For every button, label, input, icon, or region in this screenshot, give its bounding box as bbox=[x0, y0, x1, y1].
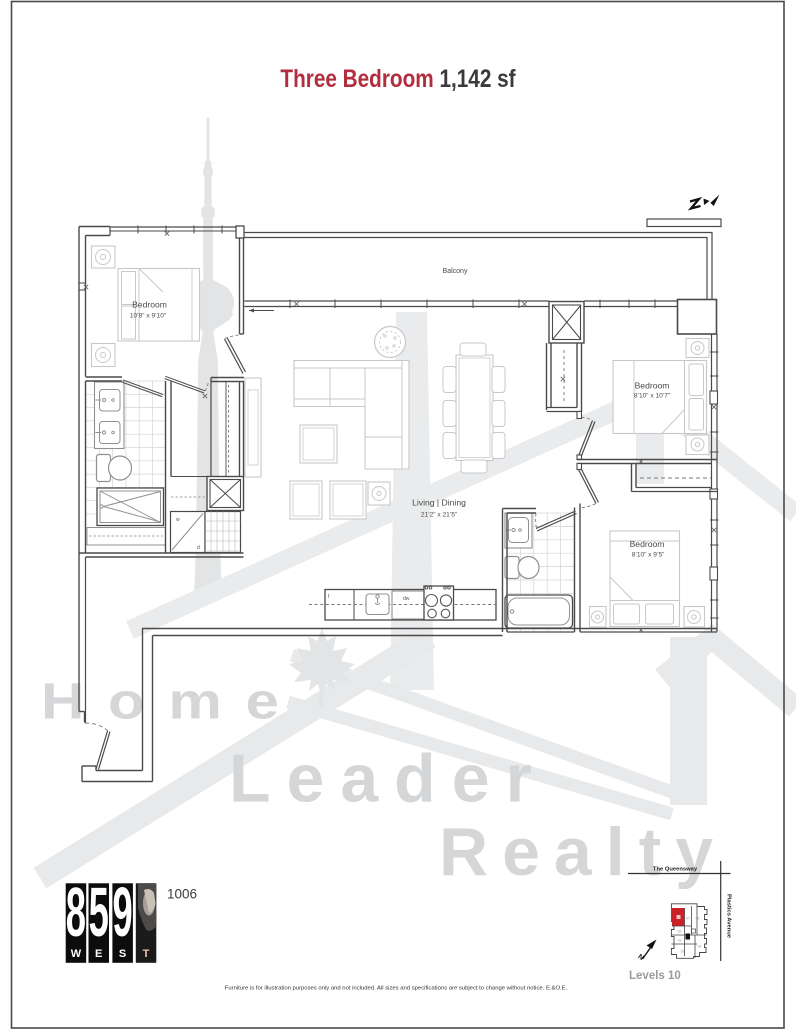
svg-text:07: 07 bbox=[686, 917, 690, 921]
svg-text:1006: 1006 bbox=[167, 887, 197, 902]
svg-text:w: w bbox=[176, 517, 180, 523]
svg-text:The Queensway: The Queensway bbox=[653, 867, 698, 873]
svg-text:T: T bbox=[143, 948, 150, 960]
svg-text:8’10” x 9’5”: 8’10” x 9’5” bbox=[632, 552, 665, 559]
svg-text:Bedroom: Bedroom bbox=[132, 300, 167, 310]
svg-text:08: 08 bbox=[696, 917, 700, 921]
svg-text:Living | Dining: Living | Dining bbox=[412, 498, 466, 508]
svg-text:S: S bbox=[119, 948, 126, 960]
svg-text:Balcony: Balcony bbox=[443, 268, 468, 275]
svg-text:8: 8 bbox=[66, 873, 86, 951]
svg-text:E: E bbox=[95, 948, 102, 960]
svg-text:Realty: Realty bbox=[439, 814, 727, 890]
svg-text:05: 05 bbox=[678, 930, 682, 934]
svg-text:Levels 10: Levels 10 bbox=[629, 970, 681, 982]
svg-text:Bedroom: Bedroom bbox=[635, 381, 670, 391]
svg-text:03: 03 bbox=[678, 939, 682, 943]
svg-text:21’2” x 21’5”: 21’2” x 21’5” bbox=[421, 512, 457, 519]
svg-text:Home: Home bbox=[41, 673, 303, 730]
svg-text:04: 04 bbox=[698, 945, 702, 949]
svg-text:Bedroom: Bedroom bbox=[630, 539, 665, 549]
svg-text:dw: dw bbox=[403, 596, 410, 602]
svg-text:10’8” x 9’10”: 10’8” x 9’10” bbox=[130, 313, 166, 320]
svg-text:02: 02 bbox=[681, 950, 685, 954]
svg-text:W: W bbox=[71, 948, 82, 960]
svg-text:Leader: Leader bbox=[229, 741, 548, 817]
svg-text:9: 9 bbox=[112, 873, 132, 951]
svg-text:Plastics Avenue: Plastics Avenue bbox=[726, 894, 732, 939]
svg-text:8’10” x 10’7”: 8’10” x 10’7” bbox=[634, 393, 670, 400]
svg-text:5: 5 bbox=[89, 873, 109, 951]
svg-text:d: d bbox=[197, 545, 200, 551]
svg-text:Furniture is for illustration: Furniture is for illustration purposes o… bbox=[225, 986, 568, 992]
svg-text:Three Bedroom 1,142 sf: Three Bedroom 1,142 sf bbox=[280, 64, 516, 92]
